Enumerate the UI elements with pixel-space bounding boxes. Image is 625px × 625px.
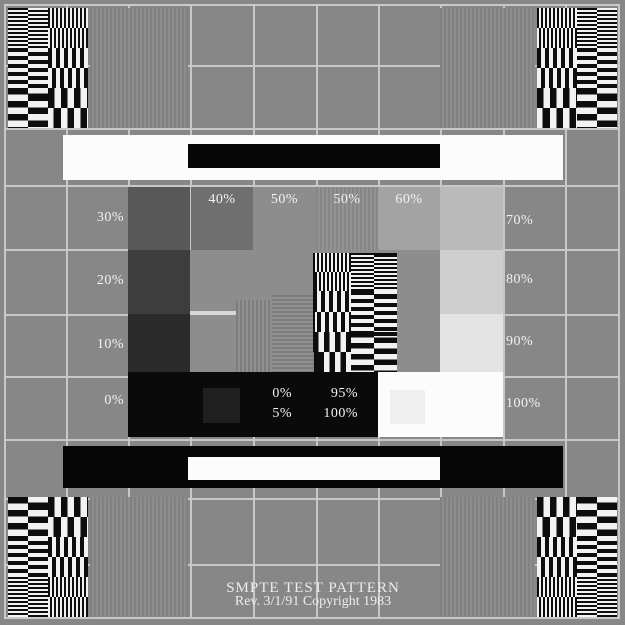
label-left-30: 30% <box>64 210 124 226</box>
label-top-50a: 50% <box>253 192 316 208</box>
label-left-0: 0% <box>64 393 124 409</box>
horizontal-bars-cell <box>374 291 397 332</box>
label-pluge-0: 0% <box>252 386 292 402</box>
label-top-40: 40% <box>191 192 253 208</box>
label-pluge-5: 5% <box>252 406 292 422</box>
label-pluge-100: 100% <box>308 406 358 422</box>
label-top-60: 60% <box>378 192 440 208</box>
footer-title: SMPTE TEST PATTERN <box>138 581 488 595</box>
vertical-bars-cell <box>313 312 351 333</box>
vertical-bars-cell <box>313 352 351 372</box>
label-right-90: 90% <box>506 334 533 350</box>
label-right-70: 70% <box>506 213 533 229</box>
horizontal-bars-cell <box>374 332 397 372</box>
vertical-bars-cell <box>313 253 351 272</box>
footer-revision: Rev. 3/1/91 Copyright 1983 <box>138 595 488 609</box>
horizontal-bars-cell <box>351 332 374 372</box>
label-right-100: 100% <box>506 396 541 412</box>
label-right-80: 80% <box>506 272 533 288</box>
vertical-bars-cell <box>313 332 351 352</box>
horizontal-bars-cell <box>374 253 397 291</box>
patch-5-percent <box>203 388 240 423</box>
label-top-50b: 50% <box>316 192 378 208</box>
label-pluge-95: 95% <box>308 386 358 402</box>
horizontal-bars-cell <box>351 253 374 291</box>
smpte-test-pattern: 30% 20% 10% 0% 40% 50% 50% 60% 70% 80% 9… <box>0 0 625 625</box>
black-region-0 <box>128 372 378 437</box>
label-left-10: 10% <box>64 337 124 353</box>
label-left-20: 20% <box>64 273 124 289</box>
patch-95-percent <box>390 390 425 424</box>
footer-caption: SMPTE TEST PATTERN Rev. 3/1/91 Copyright… <box>138 581 488 609</box>
center-resolution-burst <box>0 0 625 625</box>
horizontal-bars-cell <box>351 291 374 332</box>
vertical-bars-cell <box>313 291 351 312</box>
vertical-bars-cell <box>313 272 351 291</box>
